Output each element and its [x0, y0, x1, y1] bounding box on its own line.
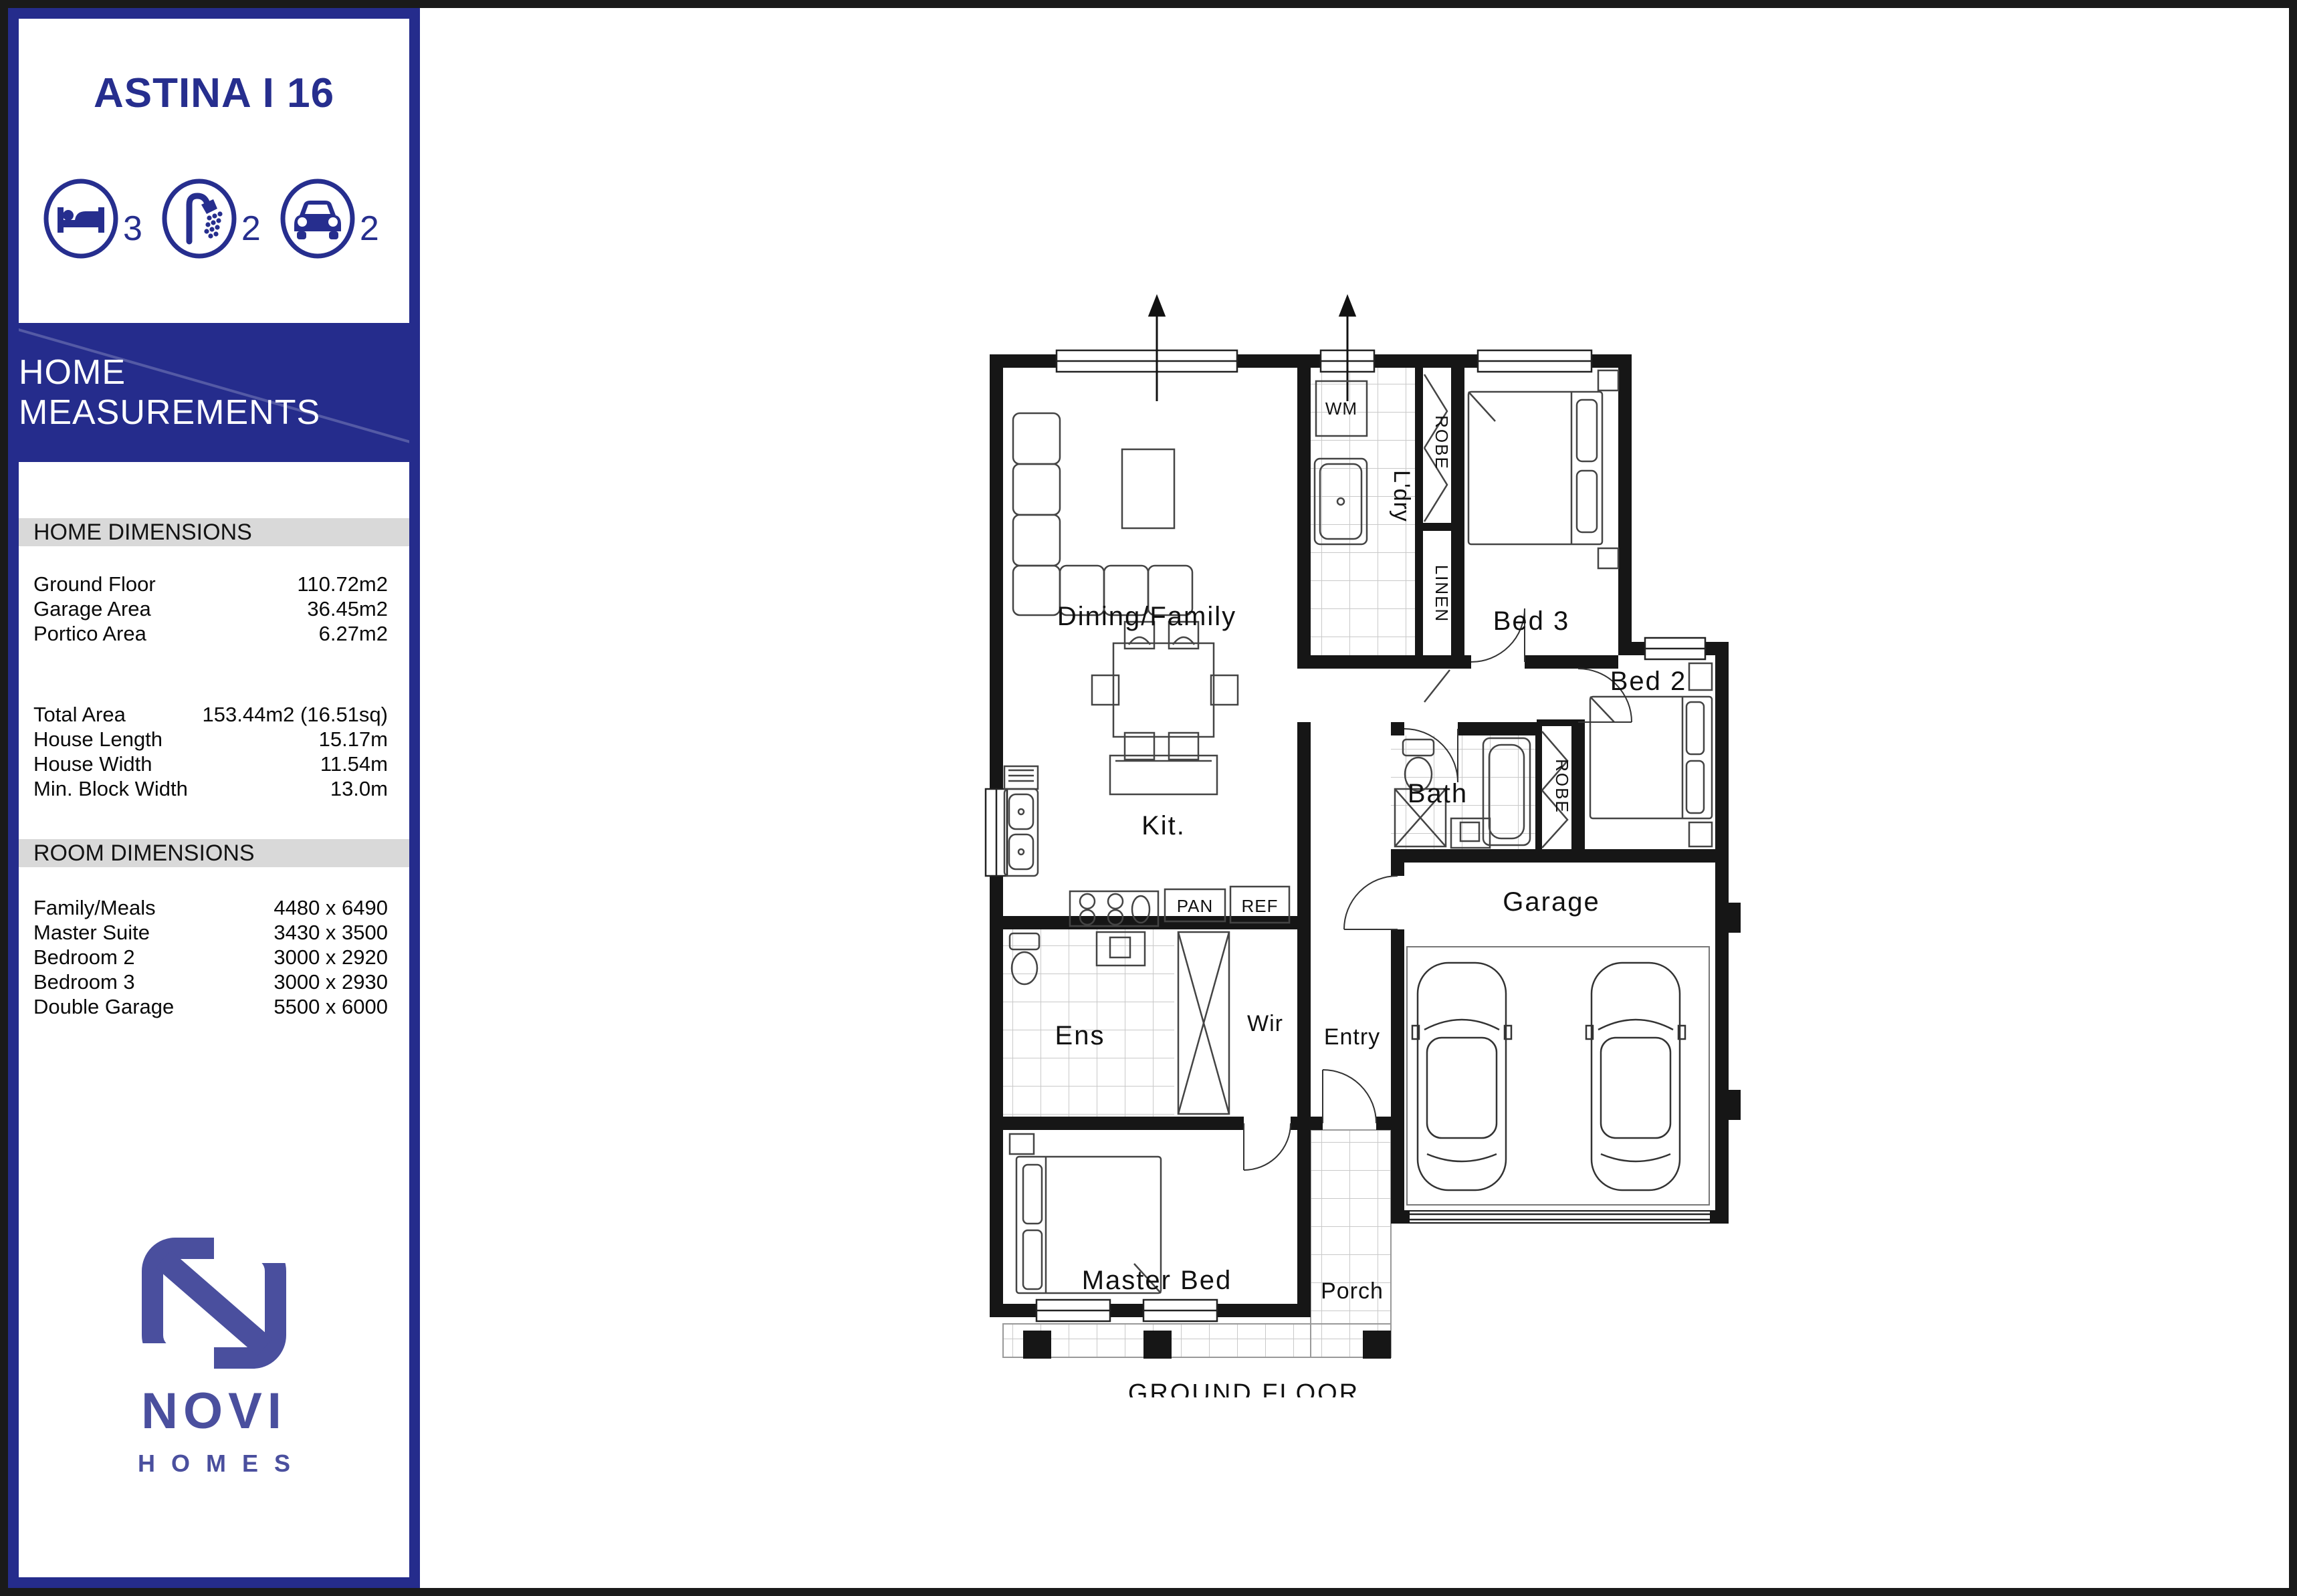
dimension-value: 15.17m — [319, 727, 388, 752]
dimension-row: Family/Meals 4480 x 6490 — [19, 895, 409, 920]
label-porch: Porch — [1321, 1278, 1384, 1304]
floor-plan: Dining/Family Kit. PAN REF WM L'dry ROBE… — [956, 288, 1785, 1397]
sidebar: ASTINA I 16 3 — [8, 8, 420, 1588]
dimension-row: Garage Area 36.45m2 — [19, 596, 409, 621]
dimension-value: 13.0m — [330, 776, 388, 801]
dimension-value: 3430 x 3500 — [274, 920, 388, 945]
dimension-value: 36.45m2 — [307, 596, 388, 621]
dimension-label: Bedroom 3 — [33, 970, 135, 994]
logo-subtitle: HOMES — [19, 1450, 409, 1478]
label-linen: LINEN — [1432, 565, 1452, 623]
dimension-label: Total Area — [33, 702, 126, 727]
stat-bathrooms: 2 — [160, 178, 261, 259]
room-dimensions-header: ROOM DIMENSIONS — [19, 839, 409, 867]
bed-icon — [41, 178, 120, 259]
dimension-row: Bedroom 2 3000 x 2920 — [19, 945, 409, 970]
dimension-value: 11.54m — [320, 752, 388, 776]
car-icon — [278, 178, 357, 259]
novi-homes-logo: NOVI HOMES — [19, 1232, 409, 1478]
dimension-value: 110.72m2 — [297, 572, 388, 596]
feature-stats: 3 2 — [41, 178, 379, 259]
dimension-label: Family/Meals — [33, 895, 156, 920]
dimension-value: 3000 x 2930 — [274, 970, 388, 994]
dimension-row: Total Area 153.44m2 (16.51sq) — [19, 702, 409, 727]
dimension-row: Min. Block Width 13.0m — [19, 776, 409, 801]
label-wir: Wir — [1247, 1011, 1283, 1036]
banner-label: HOME MEASUREMENTS — [19, 352, 409, 433]
bedroom-count: 3 — [123, 209, 142, 249]
label-fridge: REF — [1242, 896, 1279, 916]
dimension-value: 3000 x 2920 — [274, 945, 388, 970]
dimension-value: 6.27m2 — [319, 621, 388, 646]
stat-garage: 2 — [278, 178, 379, 259]
novi-logo-mark — [135, 1232, 293, 1374]
dimension-value: 153.44m2 (16.51sq) — [203, 702, 388, 727]
label-washing-machine: WM — [1325, 398, 1357, 419]
garage-count: 2 — [360, 209, 379, 249]
label-garage: Garage — [1503, 887, 1600, 917]
label-bath: Bath — [1408, 779, 1468, 808]
dimension-row: House Length 15.17m — [19, 727, 409, 752]
stat-bedrooms: 3 — [41, 178, 142, 259]
page-title: ASTINA I 16 — [19, 70, 409, 117]
home-dimensions-rows: Ground Floor 110.72m2 Garage Area 36.45m… — [19, 572, 409, 646]
dimension-row: Double Garage 5500 x 6000 — [19, 994, 409, 1019]
page: ASTINA I 16 3 — [0, 0, 2297, 1596]
logo-name: NOVI — [19, 1382, 409, 1440]
dimension-label: Garage Area — [33, 596, 151, 621]
dimension-label: Min. Block Width — [33, 776, 188, 801]
shower-icon — [160, 178, 239, 259]
label-kitchen: Kit. — [1141, 811, 1186, 840]
dimension-label: Bedroom 2 — [33, 945, 135, 970]
dimension-label: Master Suite — [33, 920, 150, 945]
dimension-value: 5500 x 6000 — [274, 994, 388, 1019]
dimension-row: Ground Floor 110.72m2 — [19, 572, 409, 596]
dimension-row: Bedroom 3 3000 x 2930 — [19, 970, 409, 994]
home-measurements-banner: HOME MEASUREMENTS — [19, 323, 409, 462]
label-bed3: Bed 3 — [1493, 606, 1570, 636]
dimension-label: Ground Floor — [33, 572, 156, 596]
dimension-label: Portico Area — [33, 621, 146, 646]
dimension-label: House Length — [33, 727, 162, 752]
label-pantry: PAN — [1177, 896, 1214, 916]
room-dimensions-rows: Family/Meals 4480 x 6490 Master Suite 34… — [19, 895, 409, 1019]
dimension-row: Master Suite 3430 x 3500 — [19, 920, 409, 945]
bathroom-count: 2 — [241, 209, 261, 249]
label-robe-bed3: ROBE — [1432, 415, 1452, 470]
house-totals-rows: Total Area 153.44m2 (16.51sq) House Leng… — [19, 702, 409, 801]
dimension-row: Portico Area 6.27m2 — [19, 621, 409, 646]
label-master-bed: Master Bed — [1082, 1266, 1232, 1295]
home-dimensions-header: HOME DIMENSIONS — [19, 518, 409, 546]
label-bed2: Bed 2 — [1610, 667, 1687, 696]
label-laundry: L'dry — [1389, 470, 1414, 522]
plan-caption: GROUND FLOOR — [1128, 1379, 1359, 1397]
label-dining-family: Dining/Family — [1057, 602, 1236, 631]
dimension-row: House Width 11.54m — [19, 752, 409, 776]
dimension-value: 4480 x 6490 — [274, 895, 388, 920]
label-ensuite: Ens — [1055, 1021, 1105, 1050]
label-entry: Entry — [1324, 1024, 1380, 1050]
dimension-label: House Width — [33, 752, 152, 776]
label-robe-bed2: ROBE — [1552, 759, 1572, 814]
dimension-label: Double Garage — [33, 994, 174, 1019]
